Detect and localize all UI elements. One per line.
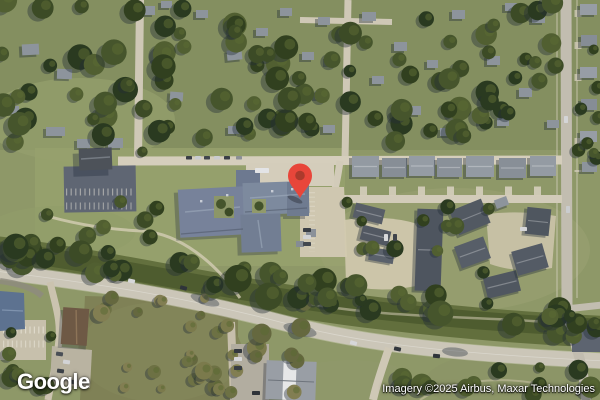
map-terrain xyxy=(0,0,600,400)
map-canvas[interactable]: Google Imagery ©2025 Airbus, Maxar Techn… xyxy=(0,0,600,400)
google-logo[interactable]: Google xyxy=(17,369,90,395)
imagery-attribution: Imagery ©2025 Airbus, Maxar Technologies xyxy=(382,383,595,395)
brown-building xyxy=(61,307,90,346)
